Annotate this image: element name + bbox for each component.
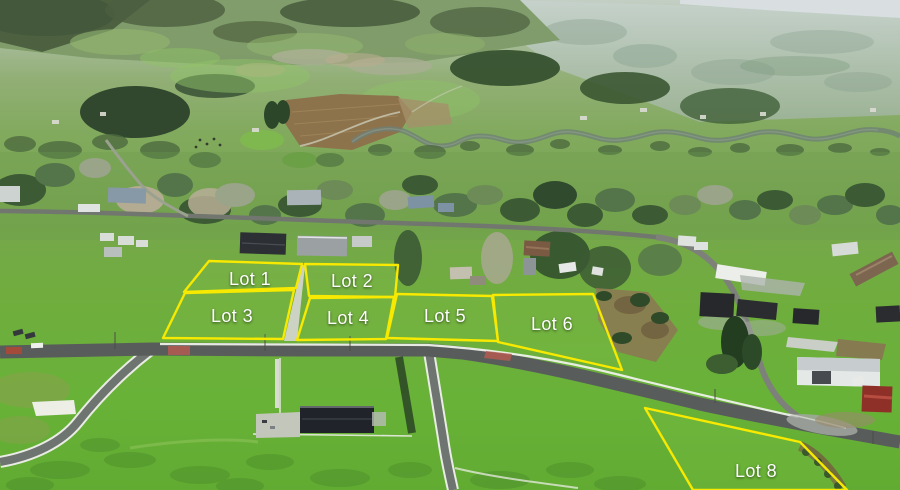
lot-label-3: Lot 3 <box>211 306 253 326</box>
lot-label-8: Lot 8 <box>735 461 777 481</box>
lot-label-5: Lot 5 <box>424 306 466 326</box>
lot-label-6: Lot 6 <box>531 314 573 334</box>
lot-label-2: Lot 2 <box>331 271 373 291</box>
landscape-art: Lot 1Lot 2Lot 3Lot 4Lot 5Lot 6Lot 8 <box>0 0 900 490</box>
lot-label-1: Lot 1 <box>229 269 271 289</box>
lot-label-4: Lot 4 <box>327 308 369 328</box>
aerial-photo: Lot 1Lot 2Lot 3Lot 4Lot 5Lot 6Lot 8 <box>0 0 900 490</box>
